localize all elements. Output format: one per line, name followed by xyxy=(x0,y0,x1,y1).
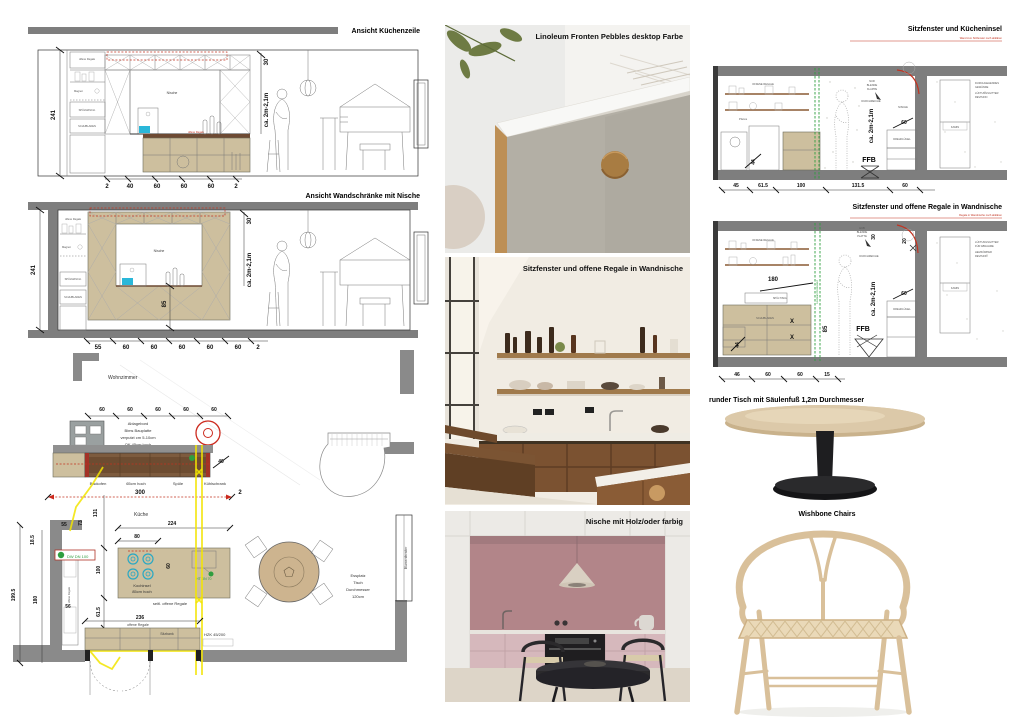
s1-ffb-label: FFB xyxy=(862,157,876,164)
plan-dim-80: 80 xyxy=(115,534,161,544)
s1-hub-1: BLENDE xyxy=(867,83,878,87)
photo3-title: Nische mit Holz/oder farbig xyxy=(586,517,684,526)
elev1-title: Ansicht Küchenzeile xyxy=(352,28,421,35)
elev2-niche-label: Nische xyxy=(154,249,165,253)
elev2-dim-30: 30 xyxy=(247,217,253,224)
plan-dim224-label: 224 xyxy=(168,521,177,527)
s2-dim-85: 85 xyxy=(823,325,829,332)
s2-x-mark-2: X xyxy=(790,335,794,341)
plan-top-dims: 60 60 60 60 60 xyxy=(85,407,231,419)
photo1-title: Linoleum Fronten Pebbles desktop Farbe xyxy=(535,32,683,41)
s1-bdim-0: 45 xyxy=(733,183,739,189)
s2-x-mark-1: X xyxy=(790,319,794,325)
plan-green-connection xyxy=(189,455,195,461)
plan-ldim-55: 55 xyxy=(61,522,67,528)
s1-person-sketch xyxy=(835,90,849,170)
s1-rnote-3: REVISION xyxy=(975,95,988,99)
s1-dreh-label: DREHFLÜGEL xyxy=(893,137,911,141)
elev1-drawers-label: SCHUBLADEN xyxy=(78,124,96,128)
s2-bottom-dims: 46 60 60 15 xyxy=(719,372,845,382)
s1-rnote-0: DURCHGEHENDES xyxy=(975,81,999,85)
s2-rnote-1: FÜR ABNAHME xyxy=(975,244,994,248)
s1-middle-annotations: NUR BLENDE KLAPPE DURCHREICHE ca. 2m-2,1… xyxy=(861,79,917,178)
wishbone-chair-image xyxy=(737,534,909,717)
plan-appliance-labels: Backofen 65cm hoch Spüle Kühlschrank xyxy=(90,481,226,486)
s1-hub-0: NUR xyxy=(869,79,875,83)
elev1-person-figure xyxy=(267,89,290,172)
s1-shelves-label: OFFENE REGALE xyxy=(752,82,774,86)
plan-ledge-note: Ablagebord Bims Bauplatte verputzt cm 5-… xyxy=(120,421,156,447)
s2-left-shelves: OFFENE REGALE 180 SPÜLTISCH SCHUBLADEN X… xyxy=(723,238,813,355)
section2-title: Sitzfenster und offene Regale in Wandnis… xyxy=(853,204,1003,211)
plan-note-1: Bims Bauplatte xyxy=(125,428,153,433)
table-title: runder Tisch mit Säulenfuß 1,2m Durchmes… xyxy=(709,397,864,404)
plan-left-shelf-label: offene Regale xyxy=(67,586,71,603)
s2-green-band: Linoleum Rückwand xyxy=(815,223,820,361)
s1-pan-label: Pfanne xyxy=(739,117,748,121)
elev1-upper-cabinets xyxy=(105,52,250,70)
plan-ldim-131: 131 xyxy=(93,509,99,518)
plan-tdim-2: 60 xyxy=(155,407,161,413)
drawing-wishbone-chair: Wishbone Chairs xyxy=(705,504,1020,724)
photo2-title: Sitzfenster und offene Regale in Wandnis… xyxy=(523,264,683,273)
elev2-pendant-lamp xyxy=(300,210,316,248)
elev1-dim-30: 30 xyxy=(264,58,270,65)
plan-island: 60 Kochinsel 85cm hoch HT DN 70 seitl. o… xyxy=(118,548,230,606)
s1-bdim-1: 61.5 xyxy=(758,183,768,189)
design-board: Ansicht Küchenzeile offene Regale Magnet… xyxy=(0,0,1024,724)
plan-window-flowers: Blumenfenster xyxy=(396,515,412,601)
elevation-wall-cabinets: Ansicht Wandschränke mit Nische offene R… xyxy=(20,190,440,350)
elev1-shelf-label: offene Regale xyxy=(79,57,96,61)
elev1-cyan-marker xyxy=(139,126,150,133)
plan-ldim-180: 180 xyxy=(33,596,39,605)
elev2-bottom-wall xyxy=(28,330,418,338)
plan-tdim-3: 60 xyxy=(183,407,189,413)
s1-bdim-4: 60 xyxy=(902,183,908,189)
s2-left-wall xyxy=(713,221,718,367)
plan-note-0: Ablagebord xyxy=(128,421,148,426)
table-image xyxy=(725,405,925,500)
plan-tdim-4: 60 xyxy=(211,407,217,413)
s1-bdim-2: 100 xyxy=(797,183,806,189)
elev1-window xyxy=(414,80,428,148)
plan-dining-set: Essplatz Tisch Durchmesser 120cm xyxy=(243,534,370,608)
s2-durchreiche-label: DURCHREICHE xyxy=(859,254,878,258)
s1-hub-2: KLAPPE xyxy=(867,87,877,91)
plan-appl-1: 65cm hoch xyxy=(126,481,146,486)
plan-island-l1: Kochinsel xyxy=(133,583,150,588)
elev1-island-red-note: offene Regale xyxy=(188,130,205,134)
s1-right-zone: KAMIN DURCHGEHENDES GEWÄNDE LÜFTUNGSGITT… xyxy=(936,80,1001,168)
s1-rnote-1: GEWÄNDE xyxy=(975,85,989,89)
elev2-niche-zone: Nische xyxy=(88,208,230,331)
plan-dining-1: Tisch xyxy=(353,580,362,585)
plan-double-door xyxy=(85,650,201,695)
elev1-magnet-label: Magnet xyxy=(74,89,83,93)
s2-green-note: Linoleum Rückwand xyxy=(815,280,819,304)
section-sitzfenster-island: Sitzfenster und Kücheninsel Wand zum Sit… xyxy=(705,22,1020,199)
section2-red-note: Regale in Wandnische noch abklären xyxy=(959,213,1002,217)
s2-bottom-wall xyxy=(713,357,1007,367)
plan-livingroom-label: Wohnzimmer xyxy=(108,375,138,381)
plan-island-l2: 85cm hoch xyxy=(132,589,152,594)
s2-drawers-label: SCHUBLADEN xyxy=(756,316,774,320)
s1-bdim-3: 131.5 xyxy=(852,183,865,189)
elev2-dim-85: 85 xyxy=(162,300,168,307)
s1-durchreiche-label: DURCHREICHE xyxy=(861,99,880,103)
plan-pipe-ht: HT DN 70 xyxy=(196,577,212,581)
plan-ldim-73: 73 xyxy=(78,520,84,526)
elev1-left-cabinets: offene Regale Magnet SPÜLMASCH. SCHUBLAD… xyxy=(70,52,105,173)
plan-dim100-label: 100 xyxy=(96,566,102,575)
elev2-window xyxy=(414,232,428,304)
plan-ldim-199: 199.5 xyxy=(11,589,17,602)
plan-bench-shelf-label: offene Regale xyxy=(127,623,149,627)
elev2-cyan-marker xyxy=(122,278,133,285)
elev2-piano xyxy=(320,238,410,326)
elev2-shelf-label: offene Regale xyxy=(65,217,82,221)
chairs-title: Wishbone Chairs xyxy=(798,511,855,518)
floor-plan: Blumenfenster Wohnzimmer 60 60 60 60 60 … xyxy=(0,345,440,724)
plan-hzk-label: HZK 45/200 xyxy=(204,632,226,637)
plan-dining-0: Essplatz xyxy=(350,573,365,578)
elev1-red-annotation xyxy=(107,52,227,60)
section1-title: Sitzfenster und Kücheninsel xyxy=(908,26,1002,33)
s1-speckle xyxy=(824,81,859,168)
plan-appl-3: Kühlschrank xyxy=(204,481,226,486)
s2-rnote-0: LÜFTUNGSGITTER xyxy=(975,240,999,244)
s2-sink-label: SPÜLTISCH xyxy=(773,296,787,300)
s1-dim-44: 44 xyxy=(751,159,757,165)
elev2-top-wall xyxy=(28,202,418,210)
s2-kamin-label: KAMIN xyxy=(951,286,959,290)
plan-ldim-615: 61.5 xyxy=(96,607,102,617)
elev1-dim-range: ca. 2m-2,1m xyxy=(264,93,270,127)
s2-person-sketch xyxy=(838,255,852,355)
plan-left-shelf-cabinet: offene Regale xyxy=(62,553,78,645)
photo3-counter xyxy=(470,630,665,634)
s2-dim-range: ca. 2m-2,1m xyxy=(871,282,877,316)
plan-dim236-label: 236 xyxy=(136,615,145,621)
plan-bench: 236 offene Regale Sitzbank HZK 45/200 xyxy=(82,615,233,650)
plan-ldim-185: 18.5 xyxy=(30,535,36,545)
plan-kitchen-label: Küche xyxy=(134,512,148,518)
plan-tdim-1: 60 xyxy=(127,407,133,413)
s1-bottom-dims: 45 61.5 100 131.5 60 xyxy=(719,183,935,193)
s2-bdim-2: 60 xyxy=(797,372,803,378)
elev2-dishwasher-label: SPÜLMASCH. xyxy=(65,277,82,281)
s2-hub-2: PLATTE xyxy=(857,234,867,238)
s1-bottom-wall xyxy=(713,170,1007,180)
s1-niche-label: NISCHE xyxy=(898,105,908,109)
elev1-bottles xyxy=(203,116,221,134)
elevation-kitchen-line: Ansicht Küchenzeile offene Regale Magnet… xyxy=(20,22,440,190)
s1-island-block xyxy=(783,132,820,170)
s1-left-shelves: OFFENE REGALE Pfanne 44 xyxy=(721,82,820,170)
s2-right-zone: KAMIN LÜFTUNGSGITTER FÜR ABNAHME HEIZKÖR… xyxy=(936,237,1003,340)
s1-left-wall xyxy=(713,66,718,180)
s2-hub-1: BLENDE xyxy=(857,230,868,234)
plan-dim300-label: 300 xyxy=(135,490,146,496)
plan-appl-2: Spüle xyxy=(173,481,184,486)
s1-dim-60: 60 xyxy=(901,120,907,126)
plan-pipe-dw: DW DN 100 xyxy=(55,550,95,560)
elev1-dishwasher-label: SPÜLMASCH. xyxy=(79,108,96,112)
plan-bench-label: Sitzbank xyxy=(160,632,174,636)
plan-walls xyxy=(13,350,414,662)
s2-shelves-label: OFFENE REGALE xyxy=(752,238,774,242)
s2-bdim-3: 15 xyxy=(824,372,830,378)
elev1-pendant-lamp xyxy=(300,50,316,96)
plan-note-2: verputzt cm 5-10cm xyxy=(120,435,156,440)
photo-linoleum-front: Linoleum Fronten Pebbles desktop Farbe xyxy=(445,25,690,253)
elev1-niche-zone: Nische xyxy=(105,70,250,134)
s2-bdim-1: 60 xyxy=(765,372,771,378)
section1-red-note: Wand zum Sitzfenster noch abklären xyxy=(960,36,1003,40)
elev1-niche-label: Nische xyxy=(167,91,178,95)
s2-dim-60: 60 xyxy=(901,291,907,297)
s2-rnote-3: REVISION xyxy=(975,254,988,258)
s1-top-wall xyxy=(713,66,1007,76)
s2-middle-annotations: HUB BLENDE PLATTE 30 DURCHREICHE ca. 2m-… xyxy=(855,226,917,357)
plan-pipe-dw-label: DW DN 100 xyxy=(67,554,89,559)
s1-rnote-2: LÜFTUNGSGITTER xyxy=(975,91,999,95)
plan-dim80-label: 80 xyxy=(134,534,140,540)
elev2-title: Ansicht Wandschränke mit Nische xyxy=(306,193,421,200)
photo-kitchen-shelves: Sitzfenster und offene Regale in Wandnis… xyxy=(445,257,690,505)
photo2-island-hole xyxy=(649,485,665,501)
plan-window-label: Blumenfenster xyxy=(404,546,408,569)
plan-dim-224: 224 xyxy=(115,521,233,531)
elev2-left-wall xyxy=(48,202,58,338)
drawing-round-table: runder Tisch mit Säulenfuß 1,2m Durchmes… xyxy=(705,392,1020,504)
elev2-drawers-label: SCHUBLADEN xyxy=(64,295,82,299)
plan-dim-300: 300 2 xyxy=(45,490,242,500)
s2-ffb-label: FFB xyxy=(856,326,870,333)
plan-piano xyxy=(320,433,390,496)
elev2-left-cabinets: offene Regale Magnet SPÜLMASCH. SCHUBLAD… xyxy=(60,217,86,330)
s1-kamin-label: KAMIN xyxy=(951,125,959,129)
elev1-piano xyxy=(320,84,410,170)
elev2-dim-range: ca. 2m-2,1m xyxy=(247,253,253,287)
elev2-dim-241: 241 xyxy=(31,264,37,275)
s2-dim-30: 30 xyxy=(871,234,877,240)
section-sitzfenster-shelves: Sitzfenster und offene Regale in Wandnis… xyxy=(705,199,1020,392)
plan-tdim-0: 60 xyxy=(99,407,105,413)
plan-dining-2: Durchmesser xyxy=(346,587,370,592)
plan-island-note: seitl. offene Regale xyxy=(153,601,188,606)
elev1-dim-241: 241 xyxy=(51,109,57,120)
s2-rnote-2: HEIZKÖRPER xyxy=(975,250,992,254)
plan-dim60-label: 60 xyxy=(166,563,172,569)
s2-dim-180: 180 xyxy=(768,277,779,283)
s2-dreh-label: DREHFLÜGEL xyxy=(893,307,911,311)
plan-dining-3: 120cm xyxy=(352,594,365,599)
s2-bdim-0: 46 xyxy=(734,372,740,378)
elev1-island: offene Regale xyxy=(130,116,250,172)
plan-dim2-label: 2 xyxy=(238,490,242,496)
photo-pink-niche: Nische mit Holz/oder farbig xyxy=(445,511,690,702)
s2-hub-0: HUB xyxy=(859,226,865,230)
elev2-magnet-label: Magnet xyxy=(62,245,71,249)
s1-dim-range: ca. 2m-2,1m xyxy=(869,109,875,143)
elev2-person-figure xyxy=(267,241,290,326)
s2-dim-44: 44 xyxy=(735,342,741,348)
